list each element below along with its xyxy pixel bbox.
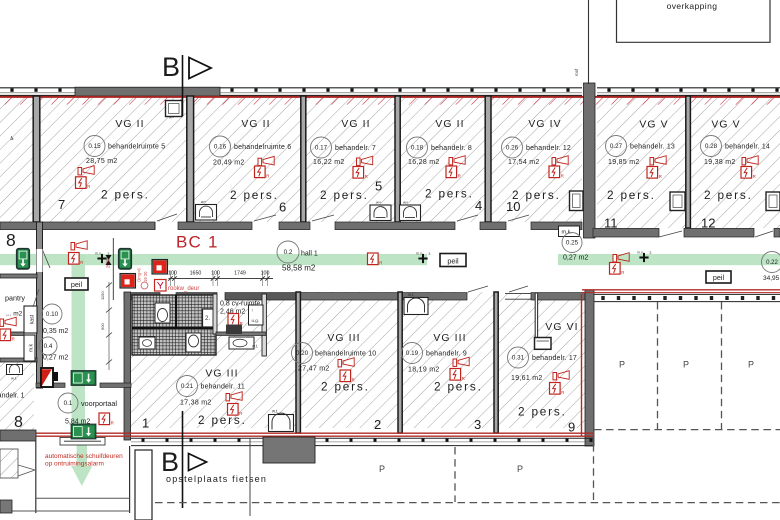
svg-text:B: B (161, 447, 179, 477)
svg-text:R: R (561, 390, 564, 395)
svg-text:VG II: VG II (341, 119, 370, 130)
svg-text:VG II: VG II (241, 119, 270, 130)
svg-text:0.28: 0.28 (705, 143, 718, 150)
svg-text:12: 12 (701, 216, 715, 231)
svg-text:voorportaal: voorportaal (81, 399, 117, 408)
svg-text:w+: w+ (201, 199, 207, 204)
svg-text:VG V: VG V (711, 120, 740, 131)
svg-text:0.2: 0.2 (284, 249, 293, 256)
svg-text:behandelr. 12: behandelr. 12 (526, 145, 571, 152)
svg-text:1749: 1749 (234, 271, 246, 277)
svg-text:0.16: 0.16 (214, 144, 227, 151)
svg-text:behandelr. 1: behandelr. 1 (0, 393, 25, 400)
svg-text:w+: w+ (403, 200, 409, 205)
svg-text:0,27 m2: 0,27 m2 (43, 355, 68, 362)
svg-text:17,54 m2: 17,54 m2 (508, 159, 540, 166)
svg-text:19,38 m2: 19,38 m2 (704, 159, 736, 166)
svg-text:9: 9 (568, 420, 575, 435)
svg-text:VG III: VG III (205, 369, 238, 380)
svg-text:2 pers.: 2 pers. (230, 188, 279, 202)
svg-text:28,75 m2: 28,75 m2 (86, 158, 118, 165)
svg-text:,.. m2: ,.. m2 (6, 311, 23, 318)
svg-text:8: 8 (6, 230, 16, 250)
svg-text:2: 2 (374, 417, 381, 432)
svg-text:2 pers.: 2 pers. (607, 188, 656, 202)
svg-text:27,47 m2: 27,47 m2 (298, 366, 330, 373)
svg-text:4: 4 (475, 198, 482, 213)
svg-text:VG II: VG II (435, 119, 464, 130)
svg-text:900: 900 (100, 323, 105, 330)
svg-text:0.26: 0.26 (506, 145, 519, 152)
svg-text:VG III: VG III (327, 333, 360, 344)
svg-text:R: R (80, 260, 83, 265)
svg-text:kast: kast (30, 314, 36, 324)
svg-text:P: P (517, 464, 523, 474)
svg-text:m.v.: m.v. (95, 251, 102, 255)
svg-text:u.g.: u.g. (252, 318, 260, 323)
svg-text:w.t.: w.t. (11, 376, 17, 381)
svg-text:18,19 m2: 18,19 m2 (408, 367, 440, 374)
svg-text:R: R (753, 174, 756, 179)
svg-text:behandelruimte 10: behandelruimte 10 (315, 350, 376, 357)
svg-text:m.k: m.k (29, 343, 35, 352)
svg-text:8: 8 (14, 414, 23, 431)
svg-text:2 pers.: 2 pers. (320, 188, 369, 202)
svg-text:behandelr. 7: behandelr. 7 (335, 145, 376, 152)
svg-text:R: R (458, 173, 461, 178)
svg-text:peil: peil (71, 280, 83, 289)
svg-text:100: 100 (168, 271, 177, 277)
svg-text:VG III: VG III (433, 333, 466, 344)
svg-text:VG II: VG II (115, 119, 144, 130)
svg-text:peil: peil (447, 256, 459, 265)
svg-text:pantry: pantry (5, 294, 25, 303)
svg-text:R: R (659, 174, 662, 179)
svg-text:0,27 m2: 0,27 m2 (563, 255, 588, 262)
svg-text:34,95: 34,95 (763, 275, 780, 282)
svg-text:Omg=6: Omg=6 (137, 267, 142, 282)
svg-text:R: R (12, 336, 15, 341)
svg-text:peil: peil (713, 273, 725, 282)
svg-text:0.27: 0.27 (610, 143, 623, 150)
svg-text:16,28 m2: 16,28 m2 (408, 159, 440, 166)
svg-text:5: 5 (375, 179, 382, 194)
svg-text:roof: roof (574, 68, 579, 76)
svg-text:w.t.: w.t. (272, 409, 278, 414)
svg-text:behandelr. 17: behandelr. 17 (532, 355, 577, 362)
svg-text:BMC: BMC (61, 372, 65, 380)
svg-text:2 pers.: 2 pers. (425, 187, 474, 201)
svg-text:0.10: 0.10 (46, 311, 59, 318)
svg-text:1650: 1650 (190, 271, 202, 277)
svg-text:3: 3 (649, 251, 651, 255)
svg-text:R: R (365, 174, 368, 179)
svg-text:11: 11 (604, 216, 618, 231)
svg-text:behandelr. 11: behandelr. 11 (201, 383, 246, 390)
svg-text:0.25: 0.25 (566, 240, 579, 247)
svg-text:automatische schuifdeuren: automatische schuifdeuren (45, 453, 123, 460)
svg-text:P: P (379, 464, 385, 474)
svg-text:0.4: 0.4 (44, 343, 53, 350)
svg-text:0.17: 0.17 (315, 145, 328, 152)
svg-text:VG IV: VG IV (528, 119, 561, 130)
svg-text:2.: 2. (205, 316, 210, 322)
svg-text:3: 3 (474, 417, 481, 432)
svg-text:w+: w+ (376, 200, 382, 205)
svg-text:w.t.: w.t. (408, 292, 414, 297)
svg-text:0.15: 0.15 (88, 143, 101, 150)
svg-text:R: R (621, 270, 624, 275)
svg-text:2 pers.: 2 pers. (321, 380, 370, 394)
svg-text:R: R (379, 260, 382, 265)
svg-text:7: 7 (58, 197, 65, 212)
svg-text:m.v.: m.v. (416, 251, 423, 255)
svg-text:0.1: 0.1 (64, 400, 73, 407)
svg-text:behandelruimte 6: behandelruimte 6 (234, 144, 291, 151)
svg-text:17,38 m2: 17,38 m2 (180, 400, 212, 407)
svg-text:100: 100 (211, 271, 220, 277)
svg-text:2 pers.: 2 pers. (518, 405, 567, 419)
svg-text:58,58 m2: 58,58 m2 (282, 264, 316, 273)
svg-text:0.18: 0.18 (411, 145, 424, 152)
svg-text:w+: w+ (169, 115, 175, 120)
svg-text:0.21: 0.21 (181, 383, 194, 390)
svg-text:1150: 1150 (100, 291, 105, 300)
svg-text:0.31: 0.31 (512, 355, 525, 362)
svg-text:2 pers.: 2 pers. (704, 188, 753, 202)
svg-text:R: R (111, 420, 114, 425)
svg-text:hall 1: hall 1 (301, 251, 318, 258)
svg-text:1: 1 (142, 416, 149, 431)
svg-text:2 pers.: 2 pers. (434, 380, 483, 394)
svg-text:behandelruimte 5: behandelruimte 5 (108, 143, 165, 150)
svg-text:P: P (683, 360, 689, 370)
svg-text:0.22: 0.22 (766, 260, 778, 266)
svg-text:P: P (748, 360, 754, 370)
svg-text:op ontruimingsalarm: op ontruimingsalarm (45, 461, 104, 468)
svg-text:P: P (619, 360, 625, 370)
svg-text:100: 100 (261, 271, 270, 277)
svg-text:6: 6 (279, 200, 286, 215)
svg-text:behandelr. 14: behandelr. 14 (725, 143, 770, 150)
svg-text:R: R (561, 173, 564, 178)
svg-text:20,49 m2: 20,49 m2 (213, 160, 245, 167)
svg-text:19 20: 19 20 (143, 271, 148, 282)
svg-text:VG VI: VG VI (545, 322, 578, 333)
svg-text:19,61 m2: 19,61 m2 (511, 375, 543, 382)
svg-text:2550: 2550 (106, 258, 111, 268)
svg-text:0.20: 0.20 (296, 350, 309, 357)
svg-text:m.v.: m.v. (637, 250, 644, 254)
svg-text:2 pers.: 2 pers. (198, 413, 247, 427)
svg-text:R: R (266, 173, 269, 178)
svg-text:opstelplaats fietsen: opstelplaats fietsen (166, 474, 267, 484)
svg-text:↑: ↑ (251, 308, 254, 314)
svg-text:VG V: VG V (639, 120, 668, 131)
svg-text:behandelr. 13: behandelr. 13 (630, 143, 675, 150)
svg-text:0,35 m2: 0,35 m2 (43, 328, 68, 335)
svg-text:R: R (87, 184, 90, 189)
svg-text:0.19: 0.19 (406, 350, 419, 357)
svg-text:B: B (162, 52, 180, 82)
svg-text:2 pers.: 2 pers. (101, 188, 150, 202)
svg-text:rookw_deur: rookw_deur (168, 286, 199, 292)
svg-text:19,85 m2: 19,85 m2 (608, 159, 640, 166)
svg-text:16,22 m2: 16,22 m2 (313, 159, 345, 166)
svg-text:overkapping: overkapping (667, 1, 718, 11)
svg-text:w.t.: w.t. (252, 344, 258, 349)
svg-text:3: 3 (428, 252, 430, 256)
svg-text:behandelr. 9: behandelr. 9 (426, 350, 467, 357)
svg-text:behandelr. 8: behandelr. 8 (431, 145, 472, 152)
svg-text:10: 10 (506, 199, 520, 214)
svg-text:BC 1: BC 1 (176, 233, 219, 252)
